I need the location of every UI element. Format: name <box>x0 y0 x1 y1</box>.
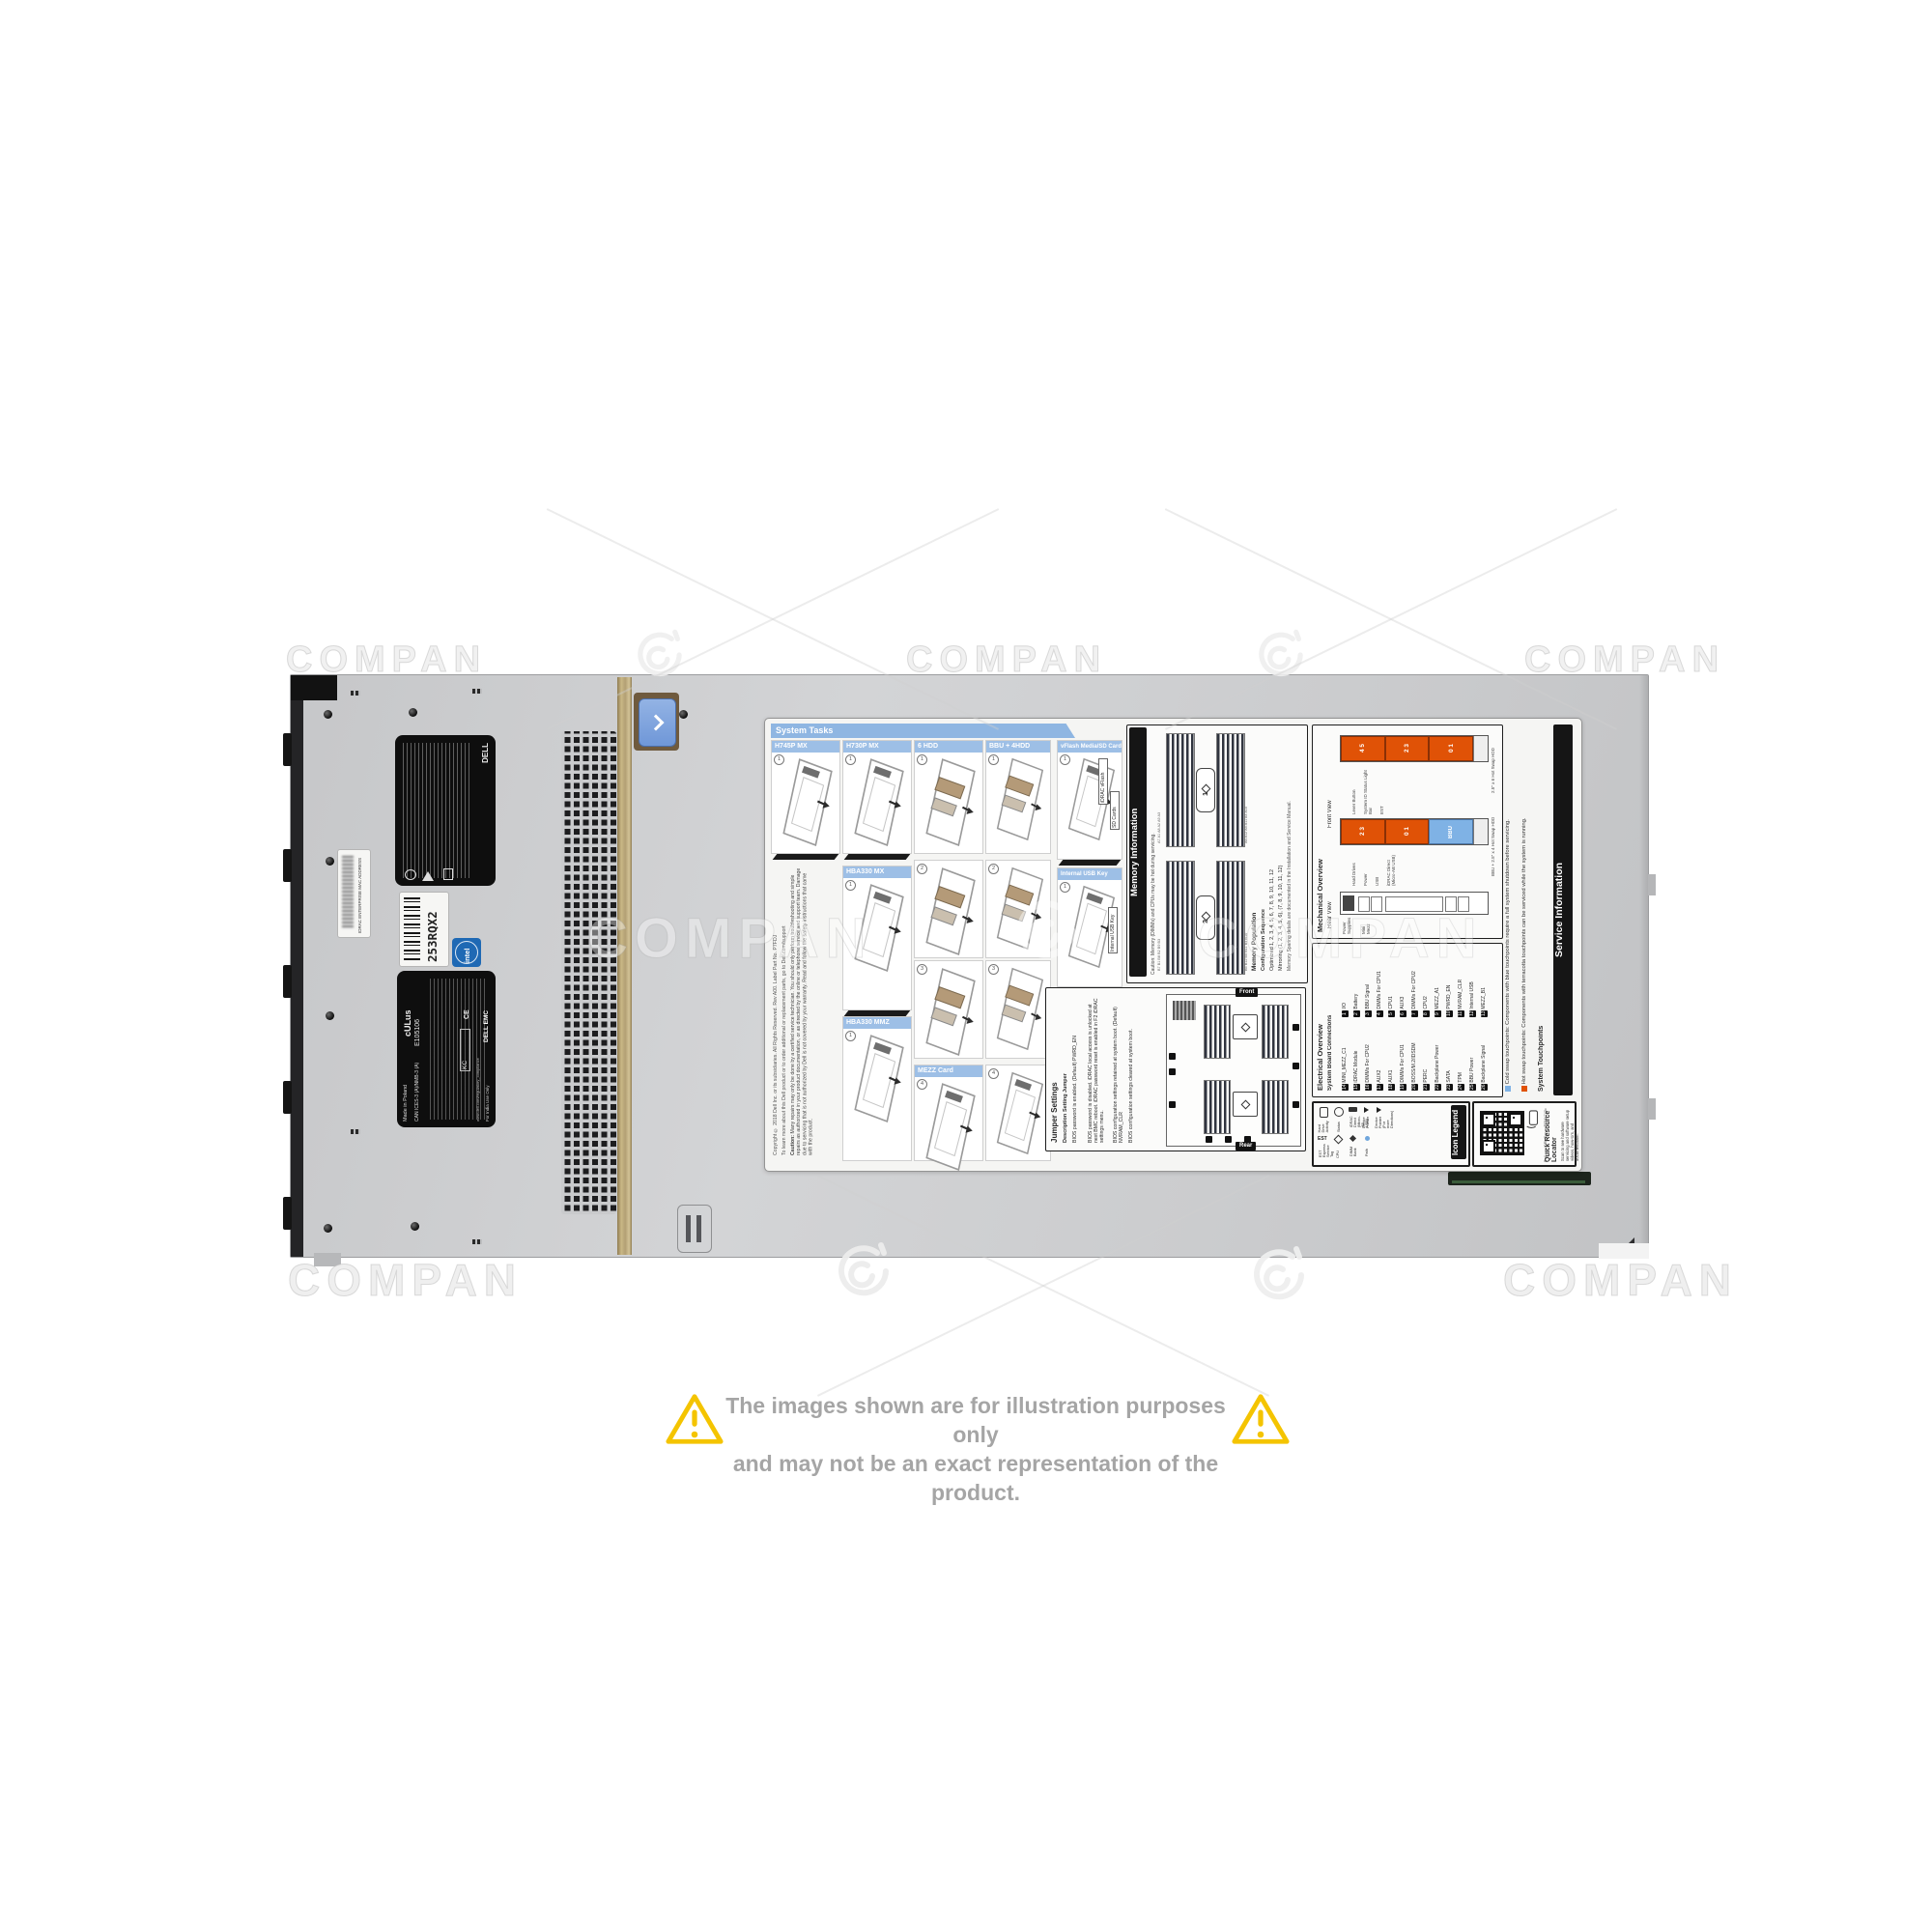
connection-item: MEZZ_B1 <box>1481 987 1487 1009</box>
step-marker: 4 <box>917 1079 927 1090</box>
server-chassis: DELL 253RQX2 intel cULus E105106 Made in… <box>290 674 1649 1258</box>
scan-hand-icon <box>1524 1109 1542 1128</box>
drive-pair: 4 5 <box>1359 744 1366 753</box>
idrac-direct-icon <box>1349 1107 1357 1112</box>
board-callout <box>1293 1063 1299 1069</box>
jumper-row-1: BIOS password is enabled. (Default) PWRD… <box>1072 994 1084 1143</box>
jumper-row-4: BIOS configuration settings cleared at s… <box>1128 994 1140 1143</box>
col-description: Description <box>1063 1114 1068 1143</box>
callout: Lever Button <box>1351 764 1356 814</box>
system-board-diagram <box>1166 994 1301 1147</box>
legend-text: Device Pointer (For more Directions) <box>1375 1115 1382 1128</box>
col-configuration: Configuration <box>1261 936 1266 971</box>
connection-item: BBU Signal <box>1365 984 1371 1009</box>
qr-code <box>1480 1111 1524 1155</box>
step-marker: 1 <box>917 754 927 765</box>
intel-sticker: intel <box>452 938 481 967</box>
io-heatsink <box>1173 1001 1196 1020</box>
callout: USB <box>1375 847 1379 886</box>
step-marker: 2 <box>917 864 927 874</box>
rivet <box>351 1129 360 1134</box>
setting: (Default) <box>1113 1007 1119 1026</box>
population-row-mirroring: Mirroring (1, 2, 3, 4, 5, 6), (7, 8, 9, … <box>1278 733 1284 971</box>
qrl-scan-text: Scan to see hardware servicing and softw… <box>1560 1105 1573 1161</box>
connection-item: AUX2 <box>1377 1070 1382 1083</box>
jumper-row-3: BIOS configuration settings retained at … <box>1113 994 1124 1143</box>
sd-cards-callout: SD Cards <box>1110 791 1120 830</box>
legend-text: iDRAC Direct (Micro-AB USB) <box>1350 1114 1357 1127</box>
dimm-slot-group-b-right <box>1216 861 1245 975</box>
panel-title: Internal USB Key <box>1058 868 1122 880</box>
warning-triangle-icon <box>665 1391 724 1447</box>
front-view-label: Front View <box>1327 731 1333 828</box>
dimm-slot-group-b-left <box>1166 861 1195 975</box>
task-panel-bbu-step3: 3 <box>985 960 1051 1059</box>
dimm-slot-group-a-right <box>1216 733 1245 847</box>
memory-information-box: Memory Information Caution: Memory (DIMM… <box>1126 724 1308 983</box>
step-marker: 4 <box>988 1068 999 1079</box>
slot-labels: A6 A12 A5 A11 A4 A10 <box>1244 737 1248 843</box>
connection-item: I/O <box>1342 1003 1348 1009</box>
intel-logo-text: intel <box>463 944 471 963</box>
connection-item: AUX3 <box>1400 997 1406 1009</box>
front-view-bar2: 2 3 0 1 BBU <box>1340 818 1489 845</box>
latch-release-button <box>639 698 676 747</box>
bar2-caption: BBU + 2.5" x 4 Hot Swap HDD <box>1491 803 1495 876</box>
blue-touchpoint-swatch <box>1505 1086 1511 1092</box>
legend-text: Hard Drive Activity <box>1318 1120 1329 1132</box>
cert-triangle-icon <box>422 871 434 881</box>
dell-logo-text: DELL <box>481 743 490 763</box>
bbu-segment: BBU <box>1448 826 1454 838</box>
task-panel-hba330mx: HBA330 MX 1 <box>842 866 912 1010</box>
step-marker: 2 <box>988 864 999 874</box>
board-dimm-group <box>1262 1005 1289 1059</box>
connections-row-2: 14 MINI_MEZZ_C1 15 iDRAC Module 16 DIMMs… <box>1342 1021 1498 1093</box>
panel-title: vFlash Media/SD Card <box>1058 741 1122 753</box>
task-panel-hba330mmz: HBA330 MMZ 1 <box>842 1016 912 1161</box>
regulatory-fine-print <box>403 743 470 878</box>
step-marker: 3 <box>917 964 927 975</box>
idrac-mac-label: IDRAC ENTERPRISE MAC ADDRESS <box>337 849 371 938</box>
support-text: To learn more about this Dell product or… <box>781 866 787 1155</box>
ul-file-number: E105106 <box>414 979 421 1046</box>
emi-gasket-strip <box>617 677 632 1255</box>
rear-view-label: Rear View <box>1327 870 1333 928</box>
connection-item: DIMMs For CPU2 <box>1365 1044 1371 1082</box>
cert-bin-icon <box>443 868 453 880</box>
slot-labels: B6 B12 B5 B11 B4 B10 <box>1244 865 1248 971</box>
task-panel-bbu-step2: 2 <box>985 860 1051 958</box>
sparing-note: Memory Sparing details are documented in… <box>1287 733 1298 971</box>
drive-carrier-clip <box>283 1081 292 1114</box>
col-sequence: Sequence <box>1261 909 1266 934</box>
connection-item: AUX1 <box>1388 1070 1394 1083</box>
chevron-right-icon <box>648 715 665 731</box>
callout: iDRAC Direct (Micro-AB USB) <box>1386 847 1396 886</box>
task-panel-h730p: H730P MX 1 <box>842 740 912 854</box>
path-icon <box>1365 1136 1370 1141</box>
task-panel-mezz: MEZZ Card 4 <box>914 1065 983 1161</box>
jumper-name: PWRD_EN <box>1072 1036 1078 1061</box>
task-panel-6hdd-step2: 2 <box>914 860 983 958</box>
mac-barcode-blurred <box>342 856 354 929</box>
ce-mark: CE <box>464 980 470 1019</box>
board-callout <box>1169 1053 1176 1060</box>
dimm-diagram: 1 2 A7 A1 A8 A2 A9 A3 A6 A12 A5 A11 A4 A… <box>1164 731 1245 975</box>
rear-tag: Rear <box>1236 1142 1256 1151</box>
memory-information-title: Memory Information <box>1129 727 1147 977</box>
system-tasks-title: System Tasks <box>771 724 1075 738</box>
panel-shadow <box>773 854 839 860</box>
task-panel-bbu-step4: 4 <box>985 1065 1051 1161</box>
internal-usb-callout: Internal USB Key <box>1108 907 1118 953</box>
front-tag: Front <box>1236 988 1258 997</box>
panel-title: 6 HDD <box>915 741 982 753</box>
step-marker: 3 <box>988 964 999 975</box>
chassis-side-tab <box>1648 1098 1656 1120</box>
panel-shadow <box>1059 860 1122 866</box>
panel-title: H745P MX <box>772 741 839 753</box>
connection-item: DIMMs For CPU1 <box>1400 1044 1406 1082</box>
service-information-title: Service Information <box>1553 724 1573 1095</box>
board-callout <box>1293 1024 1299 1031</box>
cpu1-box: 1 <box>1196 768 1215 812</box>
cpu-icon <box>1333 1135 1343 1145</box>
status-icon <box>1334 1107 1344 1117</box>
drive-carrier-clip <box>283 1197 292 1230</box>
service-label: System Tasks H745P MX 1 Copyright © 2018… <box>764 718 1582 1172</box>
legend-text: Device Pointer <box>1362 1115 1370 1128</box>
electrical-overview-box: Electrical Overview System Board Connect… <box>1312 943 1503 1097</box>
panel-title: BBU + 4HDD <box>986 741 1050 753</box>
cover-slot-detail <box>677 1205 712 1253</box>
description: BIOS password is disabled. iDRAC local a… <box>1088 998 1105 1143</box>
panel-title: H730P MX <box>843 741 911 753</box>
task-panel-6hdd-step3: 3 <box>914 960 983 1059</box>
connection-item: SATA <box>1446 1070 1452 1082</box>
sequence-value: (1, 2, 3, 4, 5, 6), (7, 8, 9, 10, 11, 12… <box>1278 865 1284 948</box>
slot-labels: B7 B1 B8 B2 B9 B3 <box>1157 865 1161 971</box>
caution-body: Many repairs may only be done by a certi… <box>790 868 814 1155</box>
chassis-side-tab <box>1648 874 1656 895</box>
disclaimer-line2: and may not be an exact representation o… <box>723 1449 1229 1507</box>
panel-title: HBA330 MX <box>843 867 911 878</box>
board-dimm-group <box>1204 1005 1231 1059</box>
ices-text: CAN ICES-3 (A)/NMB-3 (A) <box>414 1054 420 1122</box>
connection-item: TPM <box>1458 1072 1463 1083</box>
task-panel-h745p: H745P MX 1 <box>771 740 840 854</box>
memory-population-table: Memory Population Configuration Sequence… <box>1251 733 1298 973</box>
connection-item: Internal USB <box>1469 981 1475 1009</box>
connection-item: MEZZ_A1 <box>1435 987 1440 1009</box>
rivet <box>472 1239 482 1244</box>
description: BIOS configuration settings cleared at s… <box>1128 1029 1134 1143</box>
setting: (Default) <box>1072 1062 1078 1081</box>
col-setting: Setting <box>1063 1094 1068 1113</box>
device-pointer-icon <box>1364 1107 1369 1113</box>
step-marker: 1 <box>845 1031 856 1041</box>
panel-title: HBA330 MMZ <box>843 1017 911 1029</box>
idrac-mac-text: IDRAC ENTERPRISE MAC ADDRESS <box>357 854 362 933</box>
callout: Hard Drives <box>1351 847 1356 886</box>
board-cpu1 <box>1233 1014 1258 1039</box>
callout: System ID Status Light Bar <box>1363 764 1373 814</box>
hot-swap-text: Hot swap touchpoints: Components with te… <box>1521 818 1527 1085</box>
system-board-connections-title: System Board Connections <box>1327 950 1333 1091</box>
screw <box>326 857 334 866</box>
ul-mark-text: cULus <box>403 979 412 1037</box>
idrac-vflash-callout: iDRAC vFlash <box>1098 758 1108 805</box>
cold-swap-bullet: Cold swap touchpoints: Components with b… <box>1505 724 1518 1092</box>
callout: Power Supplies <box>1342 915 1351 934</box>
board-callout <box>1225 1136 1232 1143</box>
panel-title: MEZZ Card <box>915 1065 982 1077</box>
mechanical-overview-box: Mechanical Overview Front View 4 5 2 3 0… <box>1312 724 1503 939</box>
task-panel-bbu4hdd: BBU + 4HDD 1 <box>985 740 1051 854</box>
description: BIOS password is enabled. <box>1072 1082 1078 1143</box>
service-tag-text: 253RQX2 <box>425 896 440 962</box>
kc-mark: KC <box>460 1029 470 1071</box>
dimm-bank-icon <box>1350 1135 1356 1142</box>
dell-emc-text: DELL EMC <box>483 979 490 1042</box>
legend-text: DIMM Bank <box>1350 1143 1357 1156</box>
connections-row-1: 1 I/O 2 Battery 3 BBU Signal 4 DIMMs For… <box>1342 948 1498 1019</box>
legend-text: Path <box>1365 1143 1369 1156</box>
chassis-right-edge <box>1639 675 1648 1257</box>
rivet <box>351 691 360 696</box>
service-tag-barcode <box>404 897 420 961</box>
regulatory-label-lower: cULus E105106 Made in Poland CAN ICES-3 … <box>397 971 496 1127</box>
step-marker: 1 <box>1060 754 1070 765</box>
rear-callouts: Power Supplies Mini Mezz <box>1342 915 1371 934</box>
chassis-bottom-tab <box>314 1253 341 1266</box>
col-jumper: Jumper <box>1063 1073 1068 1093</box>
service-tag-label: 253RQX2 <box>399 892 449 967</box>
drive-pair: 0 1 <box>1448 744 1455 753</box>
board-callout <box>1169 1101 1176 1108</box>
step-marker: 1 <box>988 754 999 765</box>
copyright-text: Copyright © 2018 Dell Inc. or its subsid… <box>773 866 779 1155</box>
connection-item: iDRAC Module <box>1353 1051 1359 1083</box>
warning-triangle-icon <box>1231 1391 1291 1447</box>
corner-step <box>1599 1243 1649 1259</box>
caution-column: Copyright © 2018 Dell Inc. or its subsid… <box>773 866 838 1159</box>
vent-grid <box>561 731 616 1214</box>
front-view-bar1: 4 5 2 3 0 1 <box>1340 735 1489 762</box>
jumper-headers: Description Setting Jumper <box>1063 994 1068 1143</box>
callout: Power <box>1363 847 1368 886</box>
cert-circle-icon <box>405 869 416 880</box>
chassis-opening <box>1448 1172 1591 1185</box>
drive-pair: 2 3 <box>1404 744 1410 753</box>
connection-item: DIMMs For CPU2 <box>1411 971 1417 1009</box>
electrical-overview-title: Electrical Overview <box>1316 950 1324 1091</box>
step-marker: 1 <box>845 880 856 891</box>
server-front-bezel <box>291 675 303 1257</box>
drive-pair: 2 3 <box>1359 827 1366 836</box>
product-photo-canvas: DELL 253RQX2 intel cULus E105106 Made in… <box>0 0 1932 1932</box>
screw <box>326 1011 334 1020</box>
board-dimm-group <box>1204 1080 1231 1134</box>
drive-carrier-clip <box>283 849 292 882</box>
connection-item: Backplane Power <box>1435 1045 1440 1083</box>
rivet <box>472 689 482 694</box>
screw <box>411 1222 419 1231</box>
cpu2-number: 2 <box>1203 920 1209 923</box>
connection-item: CPU2 <box>1423 996 1429 1009</box>
cpu1-number: 1 <box>1203 792 1209 796</box>
mechanical-overview-title: Mechanical Overview <box>1316 731 1324 932</box>
device-pointer-more-icon <box>1377 1107 1381 1113</box>
connection-item: BBU Power <box>1469 1058 1475 1083</box>
config-value: Mirroring <box>1278 950 1284 971</box>
legend-text: Status <box>1337 1119 1341 1132</box>
rear-view-bar <box>1340 892 1489 915</box>
panel-shadow <box>844 854 911 860</box>
screw <box>409 708 417 717</box>
jumper-row-2: BIOS password is disabled. iDRAC local a… <box>1088 994 1109 1143</box>
population-row-optimized: Optimized 1, 2, 3, 4, 5, 6, 7, 8, 9, 10,… <box>1269 733 1275 971</box>
screw <box>679 710 688 719</box>
front-callouts-2: Hard Drives Power USB iDRAC Direct (Micr… <box>1351 847 1396 886</box>
icon-legend-title: Icon Legend <box>1451 1105 1466 1159</box>
slot-labels: A7 A1 A8 A2 A9 A3 <box>1157 737 1161 843</box>
chassis-corner-block <box>291 675 337 700</box>
icon-legend-box: Icon Legend Hard Drive Activity Status i… <box>1312 1101 1470 1167</box>
connection-item: MINI_MEZZ_C1 <box>1342 1047 1348 1082</box>
task-panel-6hdd: 6 HDD 1 <box>914 740 983 854</box>
icon-legend-row-1: Hard Drive Activity Status iDRAC Direct … <box>1318 1107 1447 1132</box>
screw <box>324 710 332 719</box>
caution-text: Caution: Many repairs may only be done b… <box>790 866 823 1155</box>
drive-pair: 0 1 <box>1404 827 1410 836</box>
step-marker: 1 <box>774 754 784 765</box>
connection-item: CPU1 <box>1388 996 1394 1009</box>
sequence-value: 1, 2, 3, 4, 5, 6, 7, 8, 9, 10, 11, 12 <box>1269 869 1275 946</box>
made-in-text: Made in Poland <box>403 1044 409 1122</box>
jumper-settings-title: Jumper Settings <box>1050 994 1059 1143</box>
disclaimer-line1: The images shown are for illustration pu… <box>723 1391 1229 1449</box>
jumper-settings-box: Jumper Settings Description Setting Jump… <box>1045 987 1306 1151</box>
regulatory-label-upper: DELL <box>395 735 496 886</box>
legend-text: CPU <box>1336 1145 1340 1158</box>
task-panel-usbkey: Internal USB Key 1 Internal USB Key <box>1057 867 1122 987</box>
connection-item: DIMMs For CPU1 <box>1377 971 1382 1009</box>
drive-carrier-clip <box>283 733 292 766</box>
qrl-box: Scan to see hardware servicing and softw… <box>1472 1101 1577 1167</box>
task-panel-vflash: vFlash Media/SD Card 1 iDRAC vFlash SD C… <box>1057 740 1122 860</box>
connection-item: Backplane Signal <box>1481 1045 1487 1083</box>
system-touchpoints-title: System Touchpoints <box>1538 724 1545 1092</box>
memory-caution: Caution: Memory (DIMMs) and CPUs may be … <box>1151 731 1156 975</box>
bar1-caption: 2.5" x 6 Hot Swap HDD <box>1491 735 1495 793</box>
est-icon: EST <box>1318 1136 1327 1142</box>
legend-text: EST Express Service Tag <box>1319 1144 1326 1157</box>
dimm-slot-group-a-left <box>1166 733 1195 847</box>
board-callout <box>1293 1101 1299 1108</box>
step-marker: 1 <box>845 754 856 765</box>
population-title: Memory Population <box>1251 733 1258 971</box>
board-callout <box>1206 1136 1212 1143</box>
callout: Mini Mezz <box>1361 915 1371 934</box>
connection-item: PERC <box>1423 1069 1429 1083</box>
jumper-table: Jumper Settings Description Setting Jump… <box>1050 994 1140 1145</box>
connection-item: BOSS/M.2/IDSDM <box>1411 1042 1417 1082</box>
india-note-text: For India Use Only <box>485 1048 490 1122</box>
connection-item: NVRAM_CLR <box>1458 980 1463 1009</box>
board-dimm-group <box>1262 1080 1289 1134</box>
config-value: Optimized <box>1269 947 1275 971</box>
watermark-text: COMPAN <box>1503 1254 1738 1306</box>
hard-drive-icon <box>1320 1107 1328 1118</box>
connection-item: Battery <box>1353 994 1359 1009</box>
callout: EST <box>1379 764 1384 814</box>
screw <box>324 1224 332 1233</box>
reg-site-text: www.dell.com/regulatory_compliance <box>475 1048 480 1122</box>
step-marker: 1 <box>1060 882 1070 893</box>
hot-swap-bullet: Hot swap touchpoints: Components with te… <box>1521 724 1534 1092</box>
cpu2-box: 2 <box>1196 895 1215 940</box>
latch-frame <box>634 693 679 751</box>
board-cpu2 <box>1233 1092 1258 1117</box>
terracotta-touchpoint-swatch <box>1521 1086 1527 1092</box>
disclaimer-text: The images shown are for illustration pu… <box>723 1391 1229 1507</box>
icon-legend-row-2: ESTEST Express Service Tag CPU DIMM Bank… <box>1318 1136 1447 1161</box>
cold-swap-text: Cold swap touchpoints: Components with b… <box>1505 819 1511 1084</box>
drive-carrier-clip <box>283 965 292 998</box>
board-callout <box>1169 1068 1176 1075</box>
sled-illustration <box>774 753 838 849</box>
connection-item: PWRD_EN <box>1446 985 1452 1009</box>
population-headers: Configuration Sequence <box>1261 733 1266 971</box>
jumper-name: NVRAM_CLR <box>1119 1112 1124 1143</box>
front-callouts-1: Lever Button System ID Status Light Bar … <box>1351 764 1384 814</box>
touchpoints-region: Cold swap touchpoints: Components with b… <box>1505 724 1545 1095</box>
qrl-url: Dell.com/QRL/Server/PEMX740c <box>1544 1106 1548 1162</box>
